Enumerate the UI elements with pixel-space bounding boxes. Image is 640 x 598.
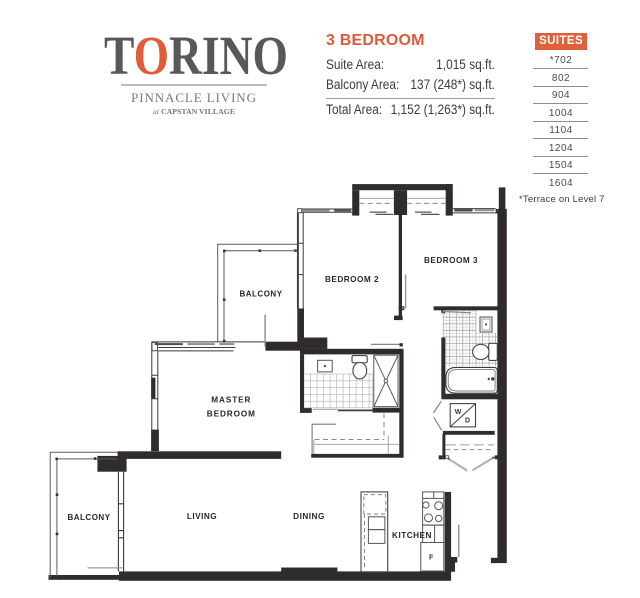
svg-text:LIVING: LIVING — [187, 512, 217, 521]
svg-text:BALCONY: BALCONY — [67, 513, 110, 522]
svg-text:BALCONY: BALCONY — [239, 289, 282, 298]
svg-text:KITCHEN: KITCHEN — [392, 531, 432, 540]
svg-text:DINING: DINING — [293, 512, 325, 521]
svg-text:W: W — [455, 409, 462, 416]
svg-text:BEDROOM: BEDROOM — [207, 409, 256, 418]
svg-text:BEDROOM 3: BEDROOM 3 — [424, 256, 478, 265]
svg-text:BEDROOM 2: BEDROOM 2 — [325, 275, 379, 284]
svg-text:D: D — [465, 417, 470, 424]
svg-text:F: F — [429, 554, 434, 561]
svg-text:MASTER: MASTER — [211, 395, 251, 404]
